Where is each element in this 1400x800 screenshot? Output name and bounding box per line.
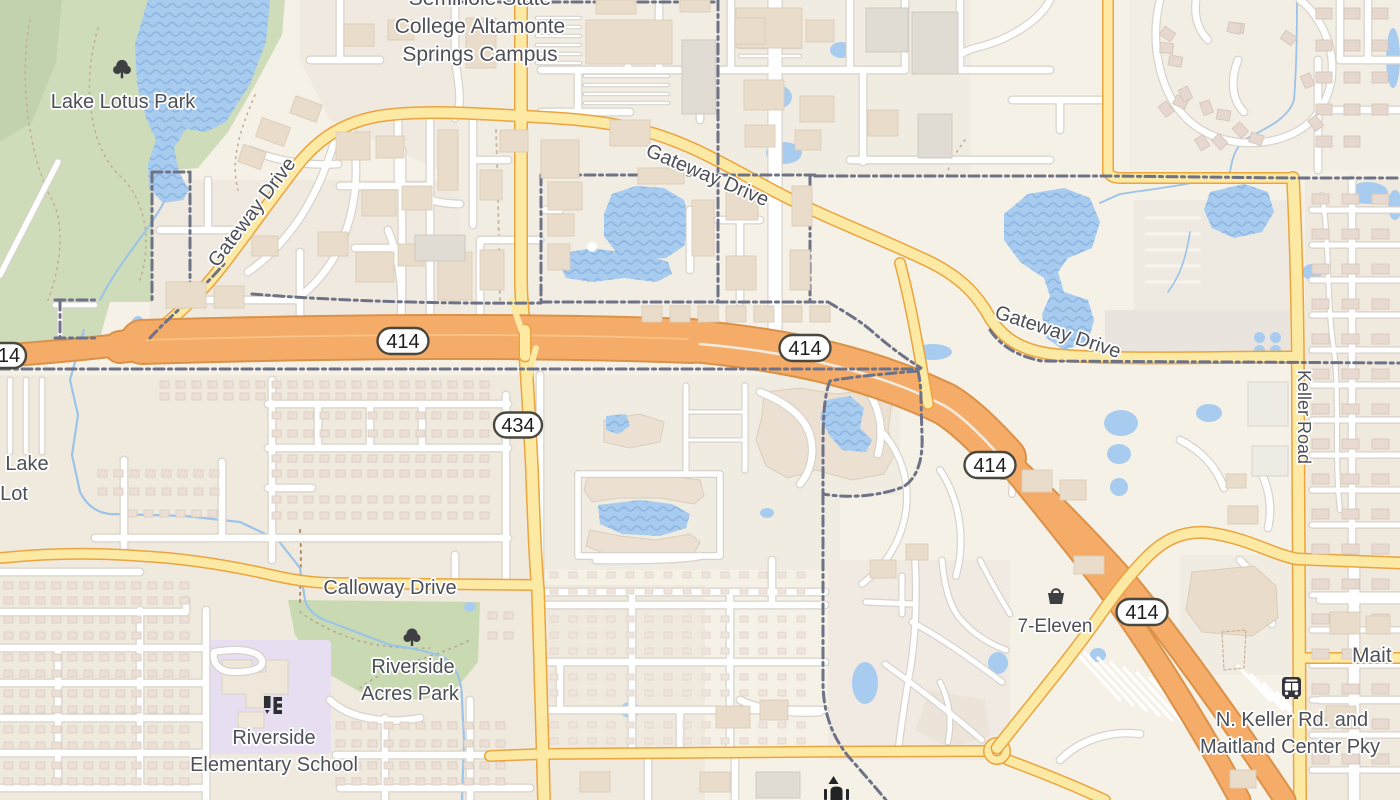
svg-text:414: 414 xyxy=(1125,602,1158,624)
svg-text:Lake Lotus Park: Lake Lotus Park xyxy=(51,91,197,113)
svg-text:Riverside: Riverside xyxy=(232,727,315,749)
svg-text:Keller Road: Keller Road xyxy=(1294,370,1314,464)
svg-text:Maitland Center Pky: Maitland Center Pky xyxy=(1200,736,1380,758)
svg-text:College Altamonte: College Altamonte xyxy=(395,15,565,38)
svg-text:434: 434 xyxy=(501,415,534,437)
svg-text:414: 414 xyxy=(788,338,821,360)
svg-text:7-Eleven: 7-Eleven xyxy=(1018,616,1093,637)
svg-text:Seminole State: Seminole State xyxy=(409,0,551,10)
svg-text:Lot: Lot xyxy=(0,483,28,505)
svg-text:Lake: Lake xyxy=(5,453,48,475)
svg-text:414: 414 xyxy=(386,331,419,353)
svg-text:Elementary School: Elementary School xyxy=(190,754,358,776)
svg-text:14: 14 xyxy=(0,345,20,367)
svg-text:N. Keller Rd. and: N. Keller Rd. and xyxy=(1216,709,1368,731)
svg-text:414: 414 xyxy=(973,455,1006,477)
svg-text:Acres Park: Acres Park xyxy=(361,683,460,705)
svg-text:Riverside: Riverside xyxy=(371,656,454,678)
svg-text:Springs Campus: Springs Campus xyxy=(402,43,557,66)
svg-text:Calloway Drive: Calloway Drive xyxy=(323,577,456,599)
svg-text:Mait: Mait xyxy=(1352,644,1392,667)
